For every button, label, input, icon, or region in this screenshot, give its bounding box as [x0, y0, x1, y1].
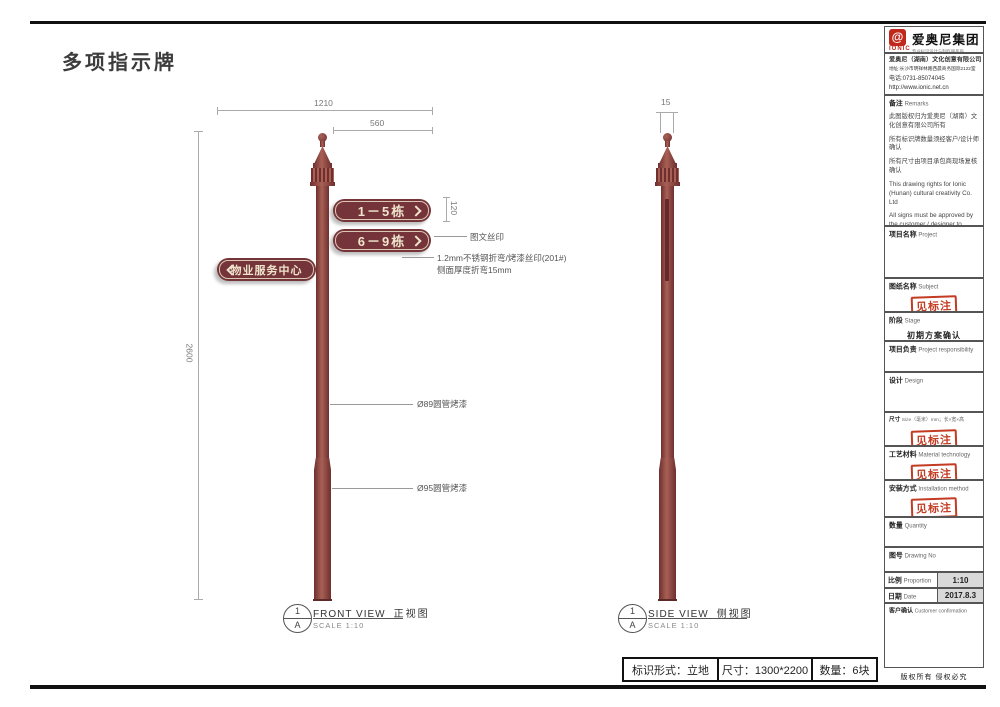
dim-tick: [432, 107, 433, 115]
front-pole-base: [313, 599, 332, 601]
company-address: 地址:长沙市明祥林路西晨商务国际2122室: [889, 66, 959, 73]
dim-label-plate-width: 560: [368, 118, 386, 128]
titleblock-proportion: 比例 Proportion 1:10: [884, 572, 984, 588]
spec-bar: 标识形式：立地 尺寸：1300*2200 数量：6块: [622, 657, 878, 682]
date-value: 2017.8.3: [937, 589, 983, 602]
dim-label-thickness: 15: [659, 97, 672, 107]
titleblock-logo: @ IONIC 爱奥尼集团 专业标识设计与制作服务商: [884, 26, 984, 53]
plate-label: 6－9栋: [358, 231, 406, 250]
plate-label: 1－5栋: [358, 201, 406, 220]
company-phone: 电话:0731-85074045: [889, 75, 979, 84]
side-pole-flute: [656, 168, 679, 182]
remark-zh-3: 所有尺寸由项目承包商现场复核确认: [889, 158, 979, 176]
ionic-logo: @ IONIC: [889, 29, 909, 52]
remark-zh-1: 此图版权归为爱奥尼（湖南）文化创意有限公司所有: [889, 113, 979, 131]
side-pole-finial-cone: [659, 146, 676, 164]
note-silkscreen: 图文丝印: [470, 231, 504, 243]
front-pole-flute: [311, 168, 334, 182]
dim-line-120: [446, 197, 447, 222]
sign-plate-1: 1－5栋: [333, 199, 431, 222]
titleblock-install: 安装方式 Installation method 见标注: [884, 480, 984, 517]
titleblock-size: 尺寸 Size（毫米）mm；长×宽×高 见标注: [884, 412, 984, 446]
company-website: http://www.ionic.net.cn: [889, 84, 979, 93]
plate-label: 物业服务中心: [231, 262, 303, 278]
view-number: 1: [284, 605, 311, 619]
company-full-name: 爱奥尼（湖南）文化创意有限公司: [889, 56, 968, 65]
see-annotation-stamp: 见标注: [911, 295, 958, 312]
titleblock-stage: 阶段 Stage 初期方案确认: [884, 312, 984, 341]
drawing-sheet: 多项指示牌 1210 560 2600 120 1－5栋 6－9栋 物业服务中心: [0, 0, 1000, 707]
titleblock-quantity: 数量 Quantity: [884, 517, 984, 547]
dim-tick: [443, 221, 450, 222]
leader-line: [402, 257, 434, 258]
dim-label-plate-height: 120: [449, 199, 459, 217]
leader-line: [330, 404, 413, 405]
dim-tick: [443, 197, 450, 198]
note-pipe-89: Ø89圆管烤漆: [417, 398, 467, 410]
dim-tick: [194, 131, 203, 132]
proportion-value: 1:10: [937, 573, 983, 587]
front-view-scale: SCALE 1:10: [313, 621, 364, 630]
dim-label-pole-height: 2600: [184, 342, 194, 365]
bottom-border-bar: [30, 685, 986, 689]
top-border-bar: [30, 21, 986, 24]
side-pole-lower-shaft: [659, 470, 676, 600]
titleblock-responsibility: 项目负责 Project responsibility: [884, 341, 984, 372]
dim-line-2600: [198, 131, 199, 600]
see-annotation-stamp: 见标注: [911, 497, 958, 517]
side-pole-coupler: [659, 458, 676, 470]
dim-ext-line: [673, 112, 674, 133]
front-pole-finial-cone: [314, 146, 331, 164]
view-letter: A: [619, 619, 646, 632]
side-view-scale: SCALE 1:10: [648, 621, 699, 630]
dim-tick: [432, 127, 433, 134]
dim-tick: [333, 127, 334, 134]
side-pole-base: [658, 599, 677, 601]
leader-line: [332, 488, 413, 489]
dim-line-560: [333, 130, 433, 131]
stage-value: 初期方案确认: [889, 330, 979, 341]
titleblock-design: 设计 Design: [884, 372, 984, 412]
titleblock-customer: 客户确认 Customer confirmation: [884, 603, 984, 668]
remark-zh-2: 所有标识牌数量须经客户/设计师确认: [889, 136, 979, 154]
side-view-marker: 1 A: [618, 604, 647, 633]
titleblock-subject: 图纸名称 Subject 见标注: [884, 278, 984, 312]
page-title: 多项指示牌: [62, 46, 177, 75]
titleblock-drawing-no: 图号 Drawing No: [884, 547, 984, 572]
dim-tick: [217, 107, 218, 115]
logo-spiral-icon: @: [889, 29, 906, 46]
dim-ext-line: [660, 112, 661, 133]
front-pole-upper-shaft: [316, 186, 329, 458]
note-steel-line2: 侧面厚度折弯15mm: [437, 264, 512, 276]
dim-label-total-width: 1210: [312, 98, 335, 108]
front-view-marker: 1 A: [283, 604, 312, 633]
leader-line: [434, 236, 467, 237]
dim-line-1210: [217, 110, 433, 111]
see-annotation-stamp: 见标注: [911, 463, 958, 480]
titleblock-date: 日期 Date 2017.8.3: [884, 588, 984, 603]
view-title-rule: [313, 618, 403, 619]
note-pipe-95: Ø95圆管烤漆: [417, 482, 467, 494]
remark-en-1: This drawing rights for Ionic (Hunan) cu…: [889, 181, 979, 207]
titleblock-remarks: 备注 Remarks 此图版权归为爱奥尼（湖南）文化创意有限公司所有 所有标识牌…: [884, 95, 984, 226]
side-plate-edge: [665, 199, 669, 281]
titleblock-material: 工艺材料 Material technology 见标注: [884, 446, 984, 480]
see-annotation-stamp: 见标注: [911, 429, 958, 446]
spec-form: 标识形式：立地: [624, 659, 719, 680]
sign-plate-2: 6－9栋: [333, 229, 431, 252]
titleblock-company-info: 爱奥尼（湖南）文化创意有限公司 地址:长沙市明祥林路西晨商务国际2122室 电话…: [884, 53, 984, 95]
titleblock-project: 项目名称 Project: [884, 226, 984, 278]
front-pole-coupler: [314, 458, 331, 470]
company-group-name: 爱奥尼集团: [912, 29, 984, 48]
sign-plate-3: 物业服务中心: [217, 258, 316, 281]
remark-en-2: All signs must be approved by the custom…: [889, 212, 979, 226]
view-number: 1: [619, 605, 646, 619]
dim-tick: [194, 599, 203, 600]
view-title-rule: [648, 618, 747, 619]
view-letter: A: [284, 619, 311, 632]
front-pole-lower-shaft: [314, 470, 331, 600]
copyright-note: 版权所有 侵权必究: [884, 672, 984, 682]
spec-quantity: 数量：6块: [813, 659, 876, 680]
spec-size: 尺寸：1300*2200: [719, 659, 813, 680]
note-steel-line1: 1.2mm不锈钢折弯/烤漆丝印(201#): [437, 252, 566, 264]
